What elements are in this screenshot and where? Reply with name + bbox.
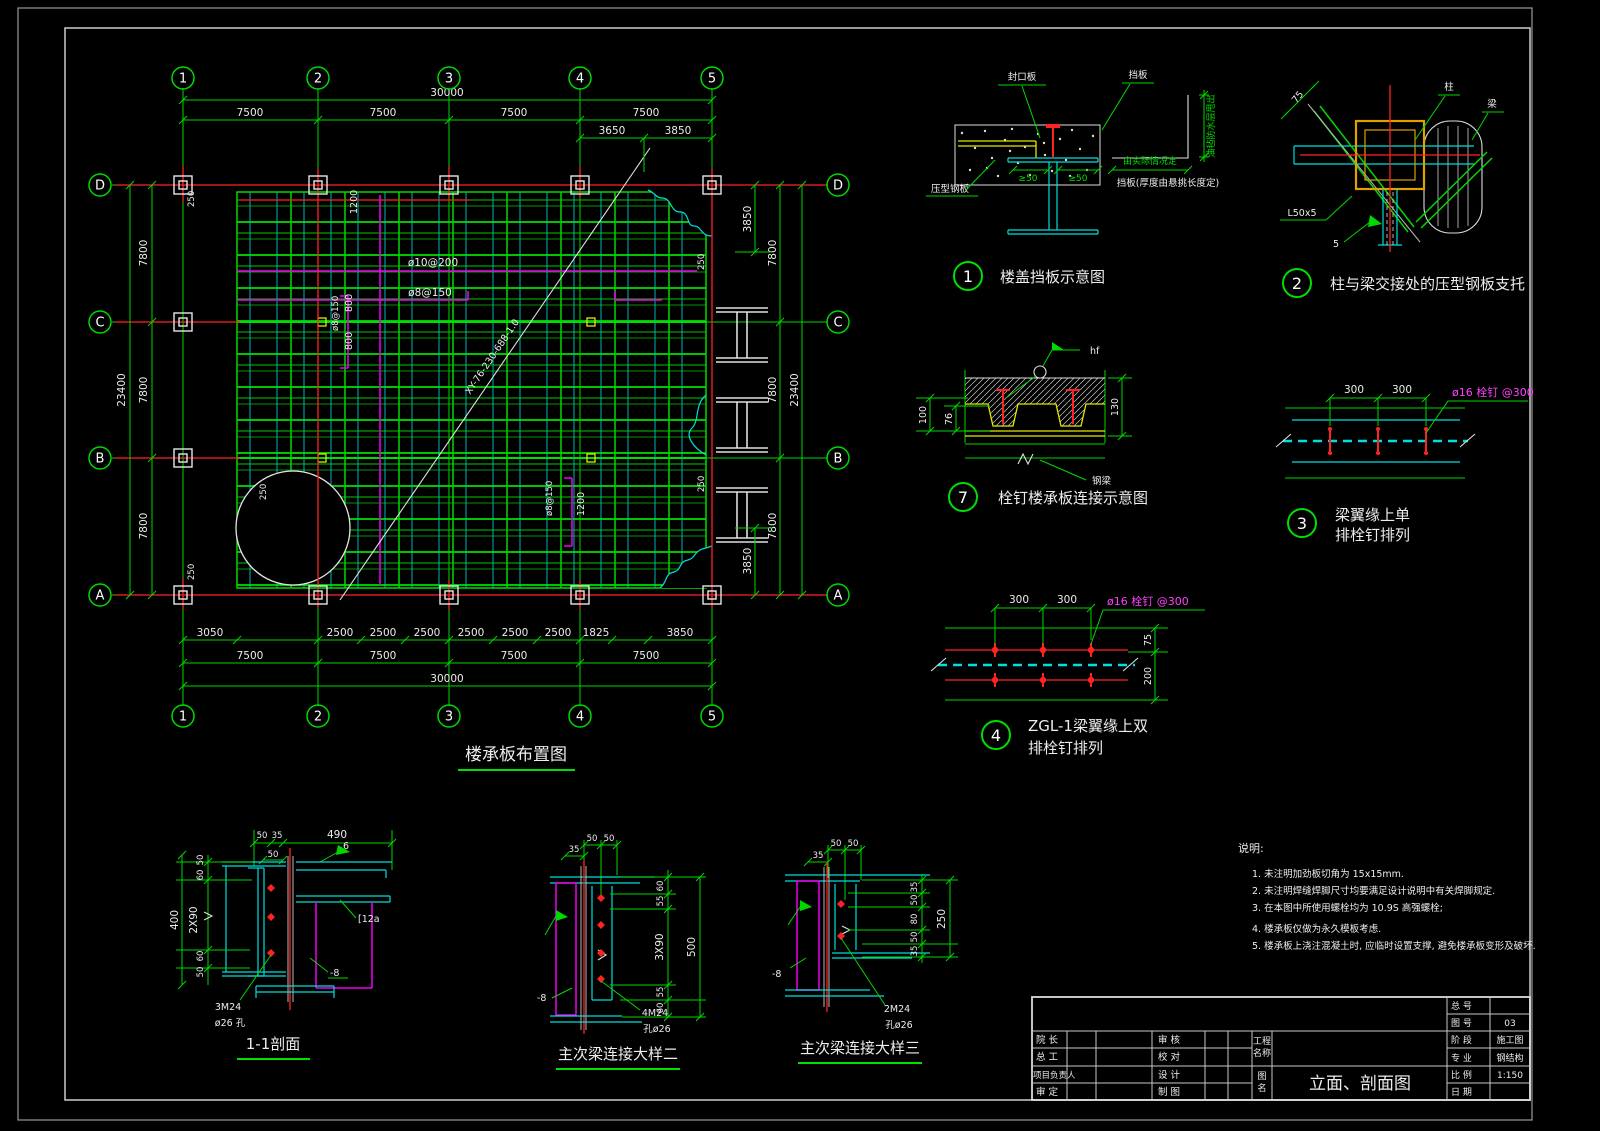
dim-23400: 23400 — [116, 373, 128, 406]
dim-80: 80 — [910, 914, 920, 925]
dim-3850: 3850 — [742, 206, 754, 233]
hole-label: ø26 孔 — [215, 1018, 246, 1029]
dim-7500: 7500 — [501, 650, 528, 662]
channel-label: [12a — [358, 914, 380, 925]
bolts — [597, 894, 605, 983]
dim-7500: 7500 — [370, 107, 397, 119]
ann-800a: 800 — [344, 294, 355, 312]
dim-50: 50 — [848, 839, 859, 849]
dim-300: 300 — [1392, 384, 1412, 396]
tb-reviewer-label: 审 核 — [1158, 1034, 1181, 1046]
detail-4: 300 300 ø16 栓钉 @300 75 200 4 ZGL-1梁翼缘上双 … — [931, 594, 1205, 757]
beam-label: 梁 — [1487, 98, 1497, 110]
grid-bubble: 1 — [179, 72, 187, 87]
dim-3850: 3850 — [665, 125, 692, 137]
bolt-label: 2M24 — [884, 1004, 910, 1015]
plate-label: -8 — [330, 968, 339, 979]
deck-plate-label: 压型钢板 — [931, 183, 970, 195]
dim-35: 35 — [272, 831, 283, 841]
dim-300: 300 — [1344, 384, 1364, 396]
tb-info-label: 日 期 — [1451, 1087, 1472, 1098]
tb-project-label: 工程 — [1253, 1036, 1271, 1047]
dim-500: 500 — [686, 937, 698, 957]
grid-bubble: C — [95, 316, 104, 331]
grid-bubble: B — [834, 452, 843, 467]
beam-geometry — [222, 848, 392, 1010]
cad-svg: XY-76-230-688-1.0 1200 ø10@200 ø8@150 80… — [0, 0, 1600, 1131]
dim-50: 50 — [831, 839, 842, 849]
grid-bubble: 4 — [576, 72, 584, 87]
dim-2x90: 2X90 — [188, 906, 200, 933]
plan-title-text: 楼承板布置图 — [465, 745, 567, 765]
grid-bubble: D — [95, 179, 105, 194]
stud-spec-label: ø16 栓钉 @300 — [1452, 385, 1534, 399]
dim-7500: 7500 — [501, 107, 528, 119]
dim-76: 76 — [944, 413, 955, 425]
detail-title-line2: 排栓钉排列 — [1335, 526, 1410, 544]
tb-discipline: 钢结构 — [1496, 1052, 1523, 1064]
dim-130: 130 — [1110, 398, 1121, 416]
dim-7800: 7800 — [767, 240, 779, 267]
dim-23400: 23400 — [789, 373, 801, 406]
dim-35: 35 — [910, 946, 920, 957]
beam-geometry — [550, 860, 655, 1034]
tb-chief-label: 总 工 — [1036, 1051, 1059, 1063]
detail-number: 4 — [991, 726, 1001, 745]
grid-bubble: A — [834, 589, 843, 604]
weld-size-label: 5 — [1333, 239, 1339, 250]
dim-300: 300 — [1009, 594, 1029, 606]
notes-header: 说明: — [1238, 841, 1264, 855]
bolts — [837, 900, 845, 940]
plan-ibeam-sections — [716, 308, 768, 542]
off-250-e: 250 — [697, 476, 707, 492]
beam-geometry — [785, 862, 930, 1012]
dim-30000-bottom: 30000 — [430, 673, 463, 685]
dim-60: 60 — [656, 881, 666, 892]
section-title: 1-1剖面 — [246, 1035, 301, 1053]
detail-title-line1: 梁翼缘上单 — [1335, 506, 1410, 524]
tb-info-label: 图 号 — [1451, 1018, 1472, 1029]
bolt-label: 4M24 — [642, 1008, 668, 1019]
connection-detail-3: 50 50 35 35 50 80 50 35 — [772, 839, 958, 1063]
tb-proofreader-label: 校 对 — [1158, 1051, 1181, 1063]
dim-3050: 3050 — [197, 627, 224, 639]
dim-2500: 2500 — [458, 627, 485, 639]
off-250-c: 250 — [259, 484, 269, 500]
tb-name-label: 图 — [1257, 1071, 1266, 1082]
title-block: 院 长 总 工 项目负责人 审 定 审 核 校 对 设 计 制 图 工程 名称 … — [1032, 997, 1530, 1100]
dim-ge50: ≥50 — [1069, 174, 1088, 184]
tb-scale: 1:150 — [1497, 1071, 1523, 1081]
detail-3: 300 300 ø16 栓钉 @300 3 梁翼缘上单 排栓钉排列 — [1276, 384, 1534, 544]
notes: 说明: 1. 未注明加劲板切角为 15x15mm. 2. 未注明焊缝焊脚尺寸均要… — [1238, 841, 1536, 952]
tb-info-label: 阶 段 — [1451, 1034, 1472, 1046]
dim-7800: 7800 — [138, 240, 150, 267]
detail-2: 75 柱 梁 L50x5 5 2 柱与梁交接处的压型钢板支托 — [1280, 81, 1525, 297]
grid-bubble: B — [96, 452, 105, 467]
tb-phase: 施工图 — [1496, 1034, 1523, 1046]
dim-2500: 2500 — [370, 627, 397, 639]
dim-55: 55 — [656, 896, 666, 907]
column-label: 柱 — [1444, 81, 1454, 93]
tb-project-label: 名称 — [1253, 1047, 1271, 1059]
detail-number: 3 — [1297, 514, 1307, 533]
grid-bubble: 1 — [179, 710, 187, 725]
dim-7800: 7800 — [767, 377, 779, 404]
ann-1200: 1200 — [349, 190, 360, 214]
dim-50: 50 — [587, 834, 598, 844]
dim-7500: 7500 — [633, 107, 660, 119]
plan-view: XY-76-230-688-1.0 1200 ø10@200 ø8@150 80… — [89, 67, 849, 770]
dim-50: 50 — [268, 850, 279, 860]
dim-1825: 1825 — [583, 627, 610, 639]
dim-300: 300 — [1057, 594, 1077, 606]
off-250-b: 250 — [187, 564, 197, 580]
baffle-label: 挡板 — [1128, 69, 1148, 81]
grid-bubble: C — [833, 316, 842, 331]
hole-label: 孔ø26 — [643, 1024, 670, 1035]
ann-1200-b: 1200 — [576, 492, 587, 516]
note-item: 4. 楼承板仅做为永久模板考虑. — [1252, 923, 1381, 935]
dim-50: 50 — [910, 895, 920, 906]
note-item: 1. 未注明加劲板切角为 15x15mm. — [1252, 868, 1404, 880]
note-item: 5. 楼承板上浇注混凝土时, 应临时设置支撑, 避免楼承板变形及破坏. — [1252, 940, 1536, 952]
plan-dims-right: 7800 7800 7800 23400 3850 3850 — [735, 181, 806, 599]
plan-dims-left: 7800 7800 7800 23400 — [116, 181, 156, 599]
ann-r8: ø8@150 — [408, 287, 452, 299]
dim-2500: 2500 — [545, 627, 572, 639]
dim-50: 50 — [257, 831, 268, 841]
ann-800b: 800 — [344, 332, 355, 350]
note-item: 2. 未注明焊缝焊脚尺寸均要满足设计说明中有关焊脚规定. — [1252, 885, 1495, 897]
baffle-note: 挡板(厚度由悬挑长度定) — [1117, 177, 1219, 189]
tb-info-label: 总 号 — [1451, 1000, 1472, 1012]
title-block-grid — [1032, 997, 1530, 1100]
tb-name-label: 名 — [1257, 1082, 1266, 1094]
dim-75: 75 — [1143, 634, 1154, 646]
grid-bubble: 2 — [314, 710, 322, 725]
dim-7800: 7800 — [138, 377, 150, 404]
dim-3850: 3850 — [742, 548, 754, 575]
section-1-1: 50 35 490 50 6 — [169, 829, 396, 1059]
plate-label: -8 — [772, 969, 781, 980]
detail-number: 2 — [1292, 274, 1302, 293]
tb-designer-label: 设 计 — [1158, 1069, 1181, 1081]
hole-label: 孔ø26 — [885, 1020, 912, 1031]
detail-7: 100 76 130 hf 钢梁 7 栓钉楼承板连接示意图 — [916, 342, 1148, 511]
ann-r10: ø10@200 — [408, 257, 458, 269]
tb-project-lead-label: 项目负责人 — [1033, 1070, 1076, 1081]
grid-bubble: 5 — [708, 710, 716, 725]
dim-60: 60 — [196, 951, 206, 962]
cad-drawing-sheet: XY-76-230-688-1.0 1200 ø10@200 ø8@150 80… — [0, 0, 1600, 1131]
tb-approver-label: 审 定 — [1036, 1086, 1059, 1098]
floor-opening — [236, 471, 350, 585]
dim-50: 50 — [910, 932, 920, 943]
dim-35: 35 — [910, 882, 920, 893]
dim-2500: 2500 — [327, 627, 354, 639]
note-item: 3. 在本图中所使用螺栓均为 10.9S 高强螺栓; — [1252, 902, 1443, 914]
stud-head — [1046, 124, 1060, 128]
dim-60: 60 — [196, 870, 206, 881]
drawing-title: 立面、剖面图 — [1309, 1074, 1411, 1094]
ann-r8-v: ø8@150 — [331, 296, 341, 331]
right-dims: 35 50 80 50 35 250 — [848, 874, 958, 963]
stud-spec-label: ø16 栓钉 @300 — [1107, 594, 1189, 608]
detail-title-line2: 排栓钉排列 — [1028, 739, 1103, 757]
dim-50: 50 — [604, 834, 615, 844]
dim-55: 55 — [656, 987, 666, 998]
dim-3850: 3850 — [667, 627, 694, 639]
plan-dims-top: 30000 7500 7500 7500 7500 3650 3850 — [179, 87, 716, 172]
dim-3650: 3650 — [599, 125, 626, 137]
dim-400: 400 — [169, 910, 181, 930]
grid-bubble: 4 — [576, 710, 584, 725]
detail-1: 油毡防水层甩出 ≥50 ≥50 由实际情况定 挡板(厚度由悬挑长度定) 封口板 … — [926, 69, 1219, 290]
left-dims: 50 60 60 50 2X90 400 — [169, 851, 252, 989]
grid-bubble: A — [96, 589, 105, 604]
grid-bubble: 5 — [708, 72, 716, 87]
dim-7500: 7500 — [370, 650, 397, 662]
detail-title-line1: ZGL-1梁翼缘上双 — [1028, 717, 1148, 735]
dim-7500: 7500 — [633, 650, 660, 662]
connection-detail-2: 50 50 35 60 55 3X90 55 — [537, 834, 706, 1069]
weld-hf-label: hf — [1090, 346, 1100, 357]
dim-2500: 2500 — [414, 627, 441, 639]
dim-7500: 7500 — [237, 107, 264, 119]
off-250-a: 250 — [187, 191, 197, 207]
dim-7500: 7500 — [237, 650, 264, 662]
by-site-note: 由实际情况定 — [1123, 155, 1177, 167]
tb-director-label: 院 长 — [1036, 1034, 1059, 1046]
grid-bubble: 3 — [445, 72, 453, 87]
dim-ge50: ≥50 — [1019, 174, 1038, 184]
dim-100: 100 — [918, 406, 929, 424]
bolts — [267, 884, 275, 957]
dim-250: 250 — [936, 909, 948, 929]
off-250-d: 250 — [697, 254, 707, 270]
detail-number: 1 — [963, 267, 973, 286]
detail-title: 主次梁连接大样二 — [558, 1045, 678, 1063]
dim-3x90: 3X90 — [654, 933, 666, 960]
grid-bubble: 3 — [445, 710, 453, 725]
detail-title: 主次梁连接大样三 — [800, 1039, 920, 1057]
tb-info-label: 比 例 — [1451, 1069, 1472, 1081]
edge-note: 油毡防水层甩出 — [1205, 94, 1217, 157]
steel-beam-label: 钢梁 — [1092, 475, 1112, 487]
tb-info-label: 专 业 — [1451, 1052, 1472, 1064]
dim-50: 50 — [196, 967, 206, 978]
dim-35: 35 — [569, 845, 580, 855]
detail-title: 楼盖挡板示意图 — [1000, 268, 1105, 286]
dim-50: 50 — [196, 855, 206, 866]
plan-dims-bottom: 3050 2500 2500 2500 2500 2500 2500 1825 … — [179, 627, 716, 690]
dim-2500: 2500 — [502, 627, 529, 639]
plan-title: 楼承板布置图 — [458, 745, 575, 770]
dim-7800: 7800 — [767, 513, 779, 540]
tb-drafter-label: 制 图 — [1158, 1086, 1180, 1098]
concrete-section — [965, 378, 1105, 426]
grid-bubble: 2 — [314, 72, 322, 87]
detail-title: 栓钉楼承板连接示意图 — [998, 489, 1148, 507]
seal-plate-label: 封口板 — [1008, 71, 1037, 83]
angle-size-label: L50x5 — [1287, 208, 1316, 219]
plate-label: -8 — [537, 993, 546, 1004]
grid-bubble: D — [833, 179, 843, 194]
bolt-label: 3M24 — [215, 1002, 241, 1013]
dim-35: 35 — [813, 851, 824, 861]
detail-number: 7 — [958, 488, 968, 507]
dim-75: 75 — [1290, 89, 1306, 105]
detail-title: 柱与梁交接处的压型钢板支托 — [1330, 275, 1525, 293]
ann-r8-b: ø8@150 — [545, 481, 555, 516]
dim-7800: 7800 — [138, 513, 150, 540]
dim-490: 490 — [327, 829, 347, 841]
dim-200: 200 — [1143, 667, 1154, 685]
tb-drawing-number: 03 — [1504, 1019, 1515, 1029]
